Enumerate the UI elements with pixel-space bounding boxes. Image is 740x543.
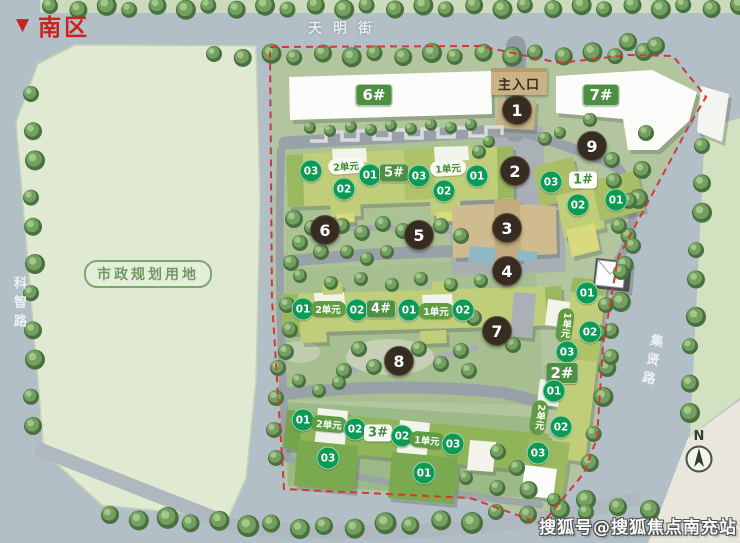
tree-icon (453, 228, 469, 244)
tree-icon (509, 460, 525, 476)
site-marker-1: 1 (502, 95, 532, 125)
tree-icon (24, 218, 42, 236)
tree-icon (24, 122, 42, 140)
tree-icon (461, 363, 477, 379)
tree-icon (444, 278, 458, 292)
tree-icon (493, 0, 513, 19)
tree-icon (23, 86, 39, 102)
building-4-wing (420, 330, 447, 344)
unit-number-badge: 01 (576, 282, 599, 305)
unit-number-badge: 02 (567, 194, 590, 217)
unit-number-badge: 02 (433, 180, 456, 203)
tree-icon (647, 37, 665, 55)
tree-icon (433, 218, 449, 234)
tree-icon (23, 190, 39, 206)
tree-icon (519, 506, 537, 524)
tree-icon (633, 161, 651, 179)
tree-icon (366, 359, 382, 375)
unit-entry-pill: 2单元 (311, 414, 348, 433)
tree-icon (292, 374, 306, 388)
tree-icon (351, 341, 367, 357)
watermark: 搜狐号@搜狐焦点南充站 (539, 513, 737, 538)
street-name-top: 天明街 (308, 18, 383, 38)
site-marker-9: 9 (577, 131, 607, 161)
tree-icon (489, 480, 505, 496)
site-marker-3: 3 (492, 213, 522, 243)
tree-icon (360, 252, 374, 266)
tree-icon (438, 1, 454, 17)
tree-icon (394, 48, 412, 66)
unit-number-badge: 03 (527, 442, 550, 465)
tree-icon (334, 0, 354, 20)
tree-icon (237, 515, 259, 537)
tree-icon (433, 356, 449, 372)
building-4-wing (300, 329, 327, 343)
tree-icon (520, 481, 538, 499)
tree-icon (121, 2, 137, 18)
utility-structure (510, 292, 536, 338)
tree-icon (693, 174, 711, 192)
tree-icon (596, 1, 612, 17)
tree-icon (293, 269, 307, 283)
tree-icon (24, 417, 42, 435)
water-feature (468, 246, 496, 263)
tree-icon (604, 152, 620, 168)
unit-number-badge: 01 (398, 299, 421, 322)
tree-icon (586, 426, 602, 442)
site-marker-4: 4 (492, 256, 522, 286)
north-label: N (694, 431, 705, 443)
tree-icon (268, 390, 284, 406)
tree-icon (619, 33, 637, 51)
tree-icon (332, 376, 346, 390)
unit-number-badge: 02 (550, 416, 573, 439)
water-feature (516, 250, 538, 262)
tree-icon (638, 125, 654, 141)
tree-icon (234, 49, 252, 67)
tree-icon (367, 45, 383, 61)
site-marker-7: 7 (482, 316, 512, 346)
unit-number-badge: 03 (540, 171, 563, 194)
tree-icon (413, 0, 433, 15)
tree-icon (285, 210, 303, 228)
unit-number-badge: 01 (413, 462, 436, 485)
tree-icon (23, 389, 39, 405)
tree-icon (583, 113, 597, 127)
tree-icon (25, 350, 45, 370)
tree-icon (313, 244, 329, 260)
tree-icon (340, 245, 354, 259)
site-marker-2: 2 (500, 156, 530, 186)
tree-icon (431, 510, 451, 530)
tree-icon (354, 272, 368, 286)
unit-entry-pill: 1单元 (430, 159, 467, 177)
building-number-label: 5# (379, 164, 409, 183)
tree-icon (651, 0, 671, 19)
unit-number-badge: 01 (605, 189, 628, 212)
tree-icon (461, 512, 483, 534)
building-number-label: 6# (355, 84, 392, 106)
tree-icon (209, 511, 229, 531)
unit-number-badge: 03 (556, 341, 579, 364)
tree-icon (544, 0, 562, 18)
tree-icon (611, 218, 627, 234)
building-number-label: 4# (366, 300, 396, 319)
building-number-label: 7# (582, 84, 619, 106)
clubhouse (516, 204, 557, 256)
tree-icon (157, 507, 179, 529)
unit-number-badge: 03 (300, 160, 323, 183)
tree-icon (324, 276, 338, 290)
unit-number-badge: 02 (579, 321, 602, 344)
unit-number-badge: 02 (333, 178, 356, 201)
tree-icon (270, 360, 286, 376)
building-number-label: 1# (569, 172, 597, 189)
unit-number-badge: 01 (466, 165, 489, 188)
section-title: ▼ 南区 (16, 8, 90, 42)
unit-number-badge: 01 (543, 380, 566, 403)
unit-entry-pill: 1单元 (418, 303, 454, 319)
tree-icon (176, 0, 196, 20)
tree-icon (694, 138, 710, 154)
tree-icon (472, 145, 486, 159)
triangle-marker-icon: ▼ (16, 15, 32, 35)
site-marker-6: 6 (310, 215, 340, 245)
tree-icon (703, 0, 721, 18)
tree-icon (453, 343, 469, 359)
tree-icon (262, 515, 280, 533)
tree-icon (282, 322, 298, 338)
tree-icon (292, 235, 308, 251)
tree-icon (682, 338, 698, 354)
main-entrance-label: 主入口 (491, 68, 547, 95)
tree-icon (687, 271, 705, 289)
tree-icon (447, 49, 463, 65)
unit-number-badge: 03 (408, 165, 431, 188)
tree-icon (593, 387, 613, 407)
tree-icon (25, 254, 45, 274)
tree-icon (342, 47, 362, 67)
unit-number-badge: 02 (452, 299, 475, 322)
tree-icon (598, 297, 614, 313)
tree-icon (401, 517, 419, 535)
tree-icon (290, 519, 310, 539)
building-number-label: 3# (364, 425, 392, 442)
tree-icon (279, 2, 295, 18)
tree-icon (625, 238, 641, 254)
tree-icon (606, 173, 622, 189)
unit-number-badge: 03 (442, 433, 465, 456)
tree-icon (692, 203, 712, 223)
tree-icon (681, 375, 699, 393)
tree-icon (386, 1, 404, 19)
tree-icon (315, 517, 333, 535)
tree-icon (474, 274, 488, 288)
tree-icon (97, 0, 117, 16)
tree-icon (283, 255, 299, 271)
building-5-cap (286, 154, 304, 207)
tree-icon (538, 132, 552, 146)
tree-icon (255, 0, 275, 16)
tree-icon (278, 344, 294, 360)
tree-icon (101, 506, 119, 524)
tree-icon (182, 514, 200, 532)
tree-icon (611, 292, 631, 312)
tree-icon (459, 471, 473, 485)
unit-entry-pill: 1单元 (409, 430, 446, 449)
tree-icon (286, 50, 302, 66)
municipal-parcel-label: 市政规划用地 (84, 260, 212, 288)
tree-icon (25, 150, 45, 170)
tree-icon (206, 46, 222, 62)
tree-icon (354, 225, 370, 241)
tree-icon (375, 512, 397, 534)
tree-icon (686, 307, 706, 327)
tree-icon (375, 216, 391, 232)
site-marker-8: 8 (384, 346, 414, 376)
tree-icon (385, 278, 399, 292)
north-compass: N (684, 431, 714, 473)
tree-icon (502, 47, 522, 67)
tree-icon (603, 349, 619, 365)
tree-icon (414, 272, 428, 286)
site-marker-5: 5 (404, 220, 434, 250)
tree-icon (688, 242, 704, 258)
tree-icon (380, 245, 394, 259)
section-title-text: 南区 (38, 8, 90, 42)
street-name-left: 科智路 (9, 276, 28, 333)
tree-icon (312, 384, 326, 398)
tree-icon (411, 341, 427, 357)
unit-entry-pill: 2单元 (310, 301, 346, 317)
tree-icon (680, 403, 700, 423)
tree-icon (129, 510, 149, 530)
unit-number-badge: 03 (317, 447, 340, 470)
site-plan-canvas: ▼ 南区 天明街 科智路 集贤路 市政规划用地 主入口 123456789 6#… (0, 0, 740, 543)
tree-icon (345, 519, 365, 539)
compass-icon (684, 443, 714, 473)
tree-icon (490, 444, 506, 460)
tree-icon (228, 1, 246, 19)
